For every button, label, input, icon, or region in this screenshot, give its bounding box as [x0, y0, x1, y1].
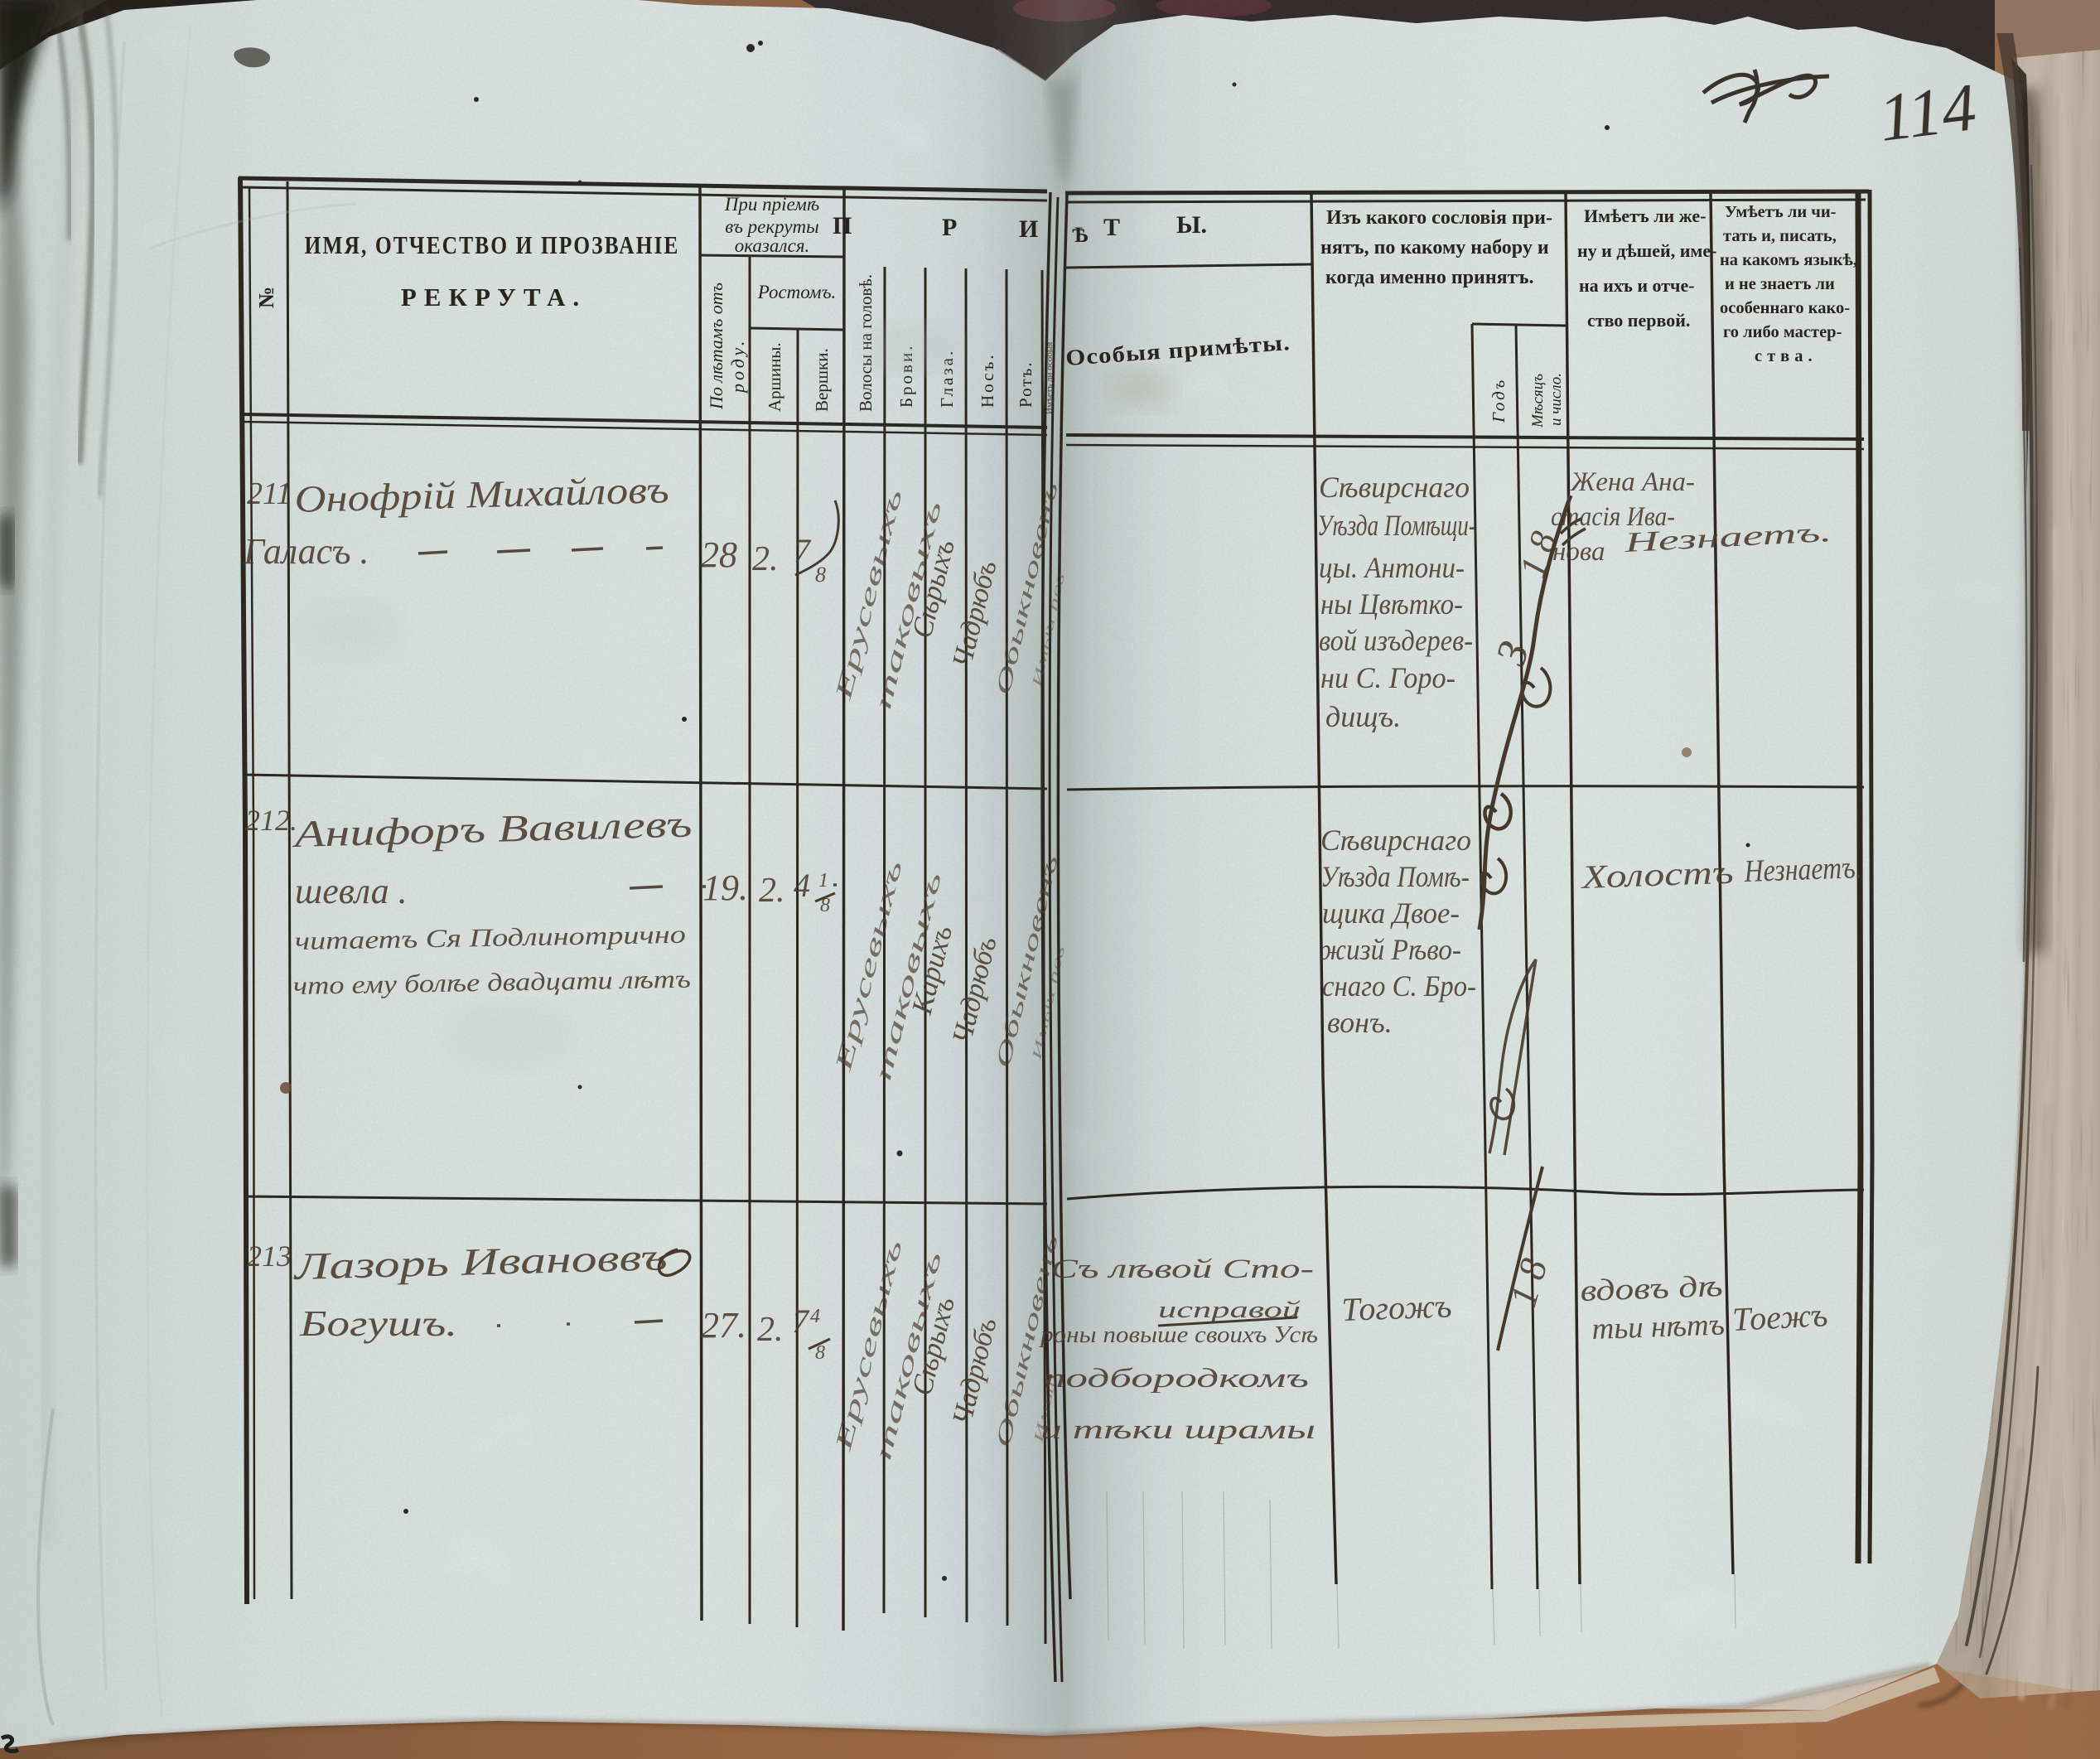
svg-text:роду.: роду. [727, 338, 748, 394]
svg-text:щика Двое-: щика Двое- [1322, 896, 1460, 930]
svg-text:№: № [254, 287, 278, 308]
svg-text:Тогожъ: Тогожъ [1341, 1287, 1452, 1328]
svg-text:Имѣетъ ли же-: Имѣетъ ли же- [1584, 205, 1706, 226]
svg-text:Тоежъ: Тоежъ [1731, 1296, 1828, 1338]
svg-text:114: 114 [1875, 69, 1980, 156]
svg-text:и число.: и число. [1547, 373, 1565, 426]
svg-text:оказался.: оказался. [735, 235, 810, 256]
svg-text:2.: 2. [759, 872, 785, 910]
svg-text:7: 7 [794, 532, 812, 569]
svg-text:нова: нова [1552, 537, 1605, 567]
svg-text:ны Цвѣтко-: ны Цвѣтко- [1320, 587, 1463, 621]
svg-text:Сѣвирснаго: Сѣвирснаго [1319, 471, 1470, 504]
svg-text:на какомъ языкѣ,: на какомъ языкѣ, [1720, 251, 1857, 269]
svg-text:нятъ, по какому набору и: нятъ, по какому набору и [1320, 237, 1549, 259]
svg-text:Аршины.: Аршины. [765, 342, 784, 412]
svg-text:Уѣзда Помѣ-: Уѣзда Помѣ- [1320, 860, 1470, 893]
svg-text:Ротъ.: Ротъ. [1016, 360, 1036, 408]
svg-text:8: 8 [815, 563, 826, 587]
svg-text:Съ лѣвой Сто-: Съ лѣвой Сто- [1050, 1254, 1314, 1284]
svg-text:Сѣвирснаго: Сѣвирснаго [1320, 824, 1471, 857]
svg-text:1: 1 [818, 870, 828, 892]
svg-text:шевла .: шевла . [295, 871, 408, 911]
svg-text:Мѣсяцъ: Мѣсяцъ [1529, 374, 1547, 428]
svg-text:Незнаетъ.: Незнаетъ. [1743, 850, 1862, 889]
svg-text:Уѣзда Помѣщи-: Уѣзда Помѣщи- [1317, 509, 1476, 542]
svg-text:28: 28 [701, 534, 737, 575]
svg-text:27.: 27. [701, 1305, 746, 1346]
svg-text:19.: 19. [702, 867, 748, 908]
svg-text:вонъ.: вонъ. [1327, 1006, 1393, 1039]
svg-text:на ихъ и отче-: на ихъ и отче- [1579, 275, 1695, 296]
svg-text:Жена Ана-: Жена Ана- [1570, 467, 1695, 497]
svg-text:И: И [1019, 215, 1038, 243]
svg-text:РЕКРУТА.: РЕКРУТА. [401, 283, 587, 312]
svg-text:Годъ: Годъ [1489, 378, 1509, 423]
svg-text:ну и дѣшей, име-: ну и дѣшей, име- [1577, 240, 1716, 261]
svg-text:и не знаетъ ли: и не знаетъ ли [1725, 275, 1835, 293]
svg-text:Богушъ.: Богушъ. [299, 1303, 457, 1344]
svg-text:При пріемѣ: При пріемѣ [724, 194, 819, 215]
svg-text:вой изъдерев-: вой изъдерев- [1319, 624, 1473, 657]
svg-text:4: 4 [810, 1306, 820, 1327]
svg-text:Ы.: Ы. [1176, 211, 1207, 239]
svg-text:2.: 2. [757, 1311, 784, 1349]
svg-text:П: П [833, 212, 852, 239]
svg-text:особеннаго како-: особеннаго како- [1720, 299, 1850, 317]
svg-text:211: 211 [247, 476, 292, 511]
svg-text:тьи нѣтъ: тьи нѣтъ [1591, 1307, 1726, 1346]
svg-text:4: 4 [794, 867, 810, 904]
svg-text:дищъ.: дищъ. [1325, 700, 1401, 733]
svg-text:2.: 2. [752, 540, 779, 578]
svg-text:ства.: ства. [1755, 347, 1818, 365]
svg-text:и тѣки шрамы: и тѣки шрамы [1040, 1415, 1316, 1445]
svg-text:ИМЯ, ОТЧЕСТВО И ПРОЗВАНІЕ: ИМЯ, ОТЧЕСТВО И ПРОЗВАНІЕ [305, 230, 680, 259]
svg-text:Носъ.: Носъ. [978, 352, 997, 408]
svg-text:Имѣетъ ли особыя: Имѣетъ ли особыя [1045, 342, 1055, 414]
svg-text:вдовъ дѣ: вдовъ дѣ [1580, 1269, 1723, 1308]
svg-text:подбородкомъ: подбородкомъ [1044, 1364, 1309, 1394]
svg-text:Галасъ .: Галасъ . [243, 531, 369, 572]
svg-text:Ростомъ.: Ростомъ. [757, 282, 837, 302]
svg-text:цы. Антони-: цы. Антони- [1319, 551, 1465, 584]
svg-text:Изъ какого сословія при-: Изъ какого сословія при- [1326, 207, 1552, 229]
svg-text:въ рекруты: въ рекруты [725, 216, 818, 237]
svg-text:когда именно принятъ.: когда именно принятъ. [1325, 267, 1533, 288]
svg-text:снаго С. Бро-: снаго С. Бро- [1322, 969, 1476, 1003]
svg-text:По лѣтамъ отъ: По лѣтамъ отъ [706, 283, 727, 410]
svg-text:ство первой.: ство первой. [1587, 310, 1690, 331]
svg-text:Ѣ: Ѣ [1072, 223, 1089, 247]
svg-text:7: 7 [792, 1302, 810, 1340]
svg-text:ни С. Горо-: ни С. Горо- [1320, 661, 1456, 694]
svg-text:го либо мастер-: го либо мастер- [1723, 323, 1842, 341]
svg-text:Вершки.: Вершки. [812, 348, 832, 412]
svg-text:212.: 212. [245, 804, 297, 837]
svg-text:жизй Рѣво-: жизй Рѣво- [1320, 933, 1461, 966]
svg-text:Умѣетъ ли чи-: Умѣетъ ли чи- [1725, 203, 1837, 221]
svg-text:Р: Р [942, 214, 957, 241]
svg-text:213: 213 [247, 1240, 292, 1273]
svg-text:тать и, писать,: тать и, писать, [1723, 227, 1837, 245]
svg-text:Т: Т [1103, 214, 1120, 241]
svg-text:Холостъ: Холостъ [1579, 853, 1734, 896]
